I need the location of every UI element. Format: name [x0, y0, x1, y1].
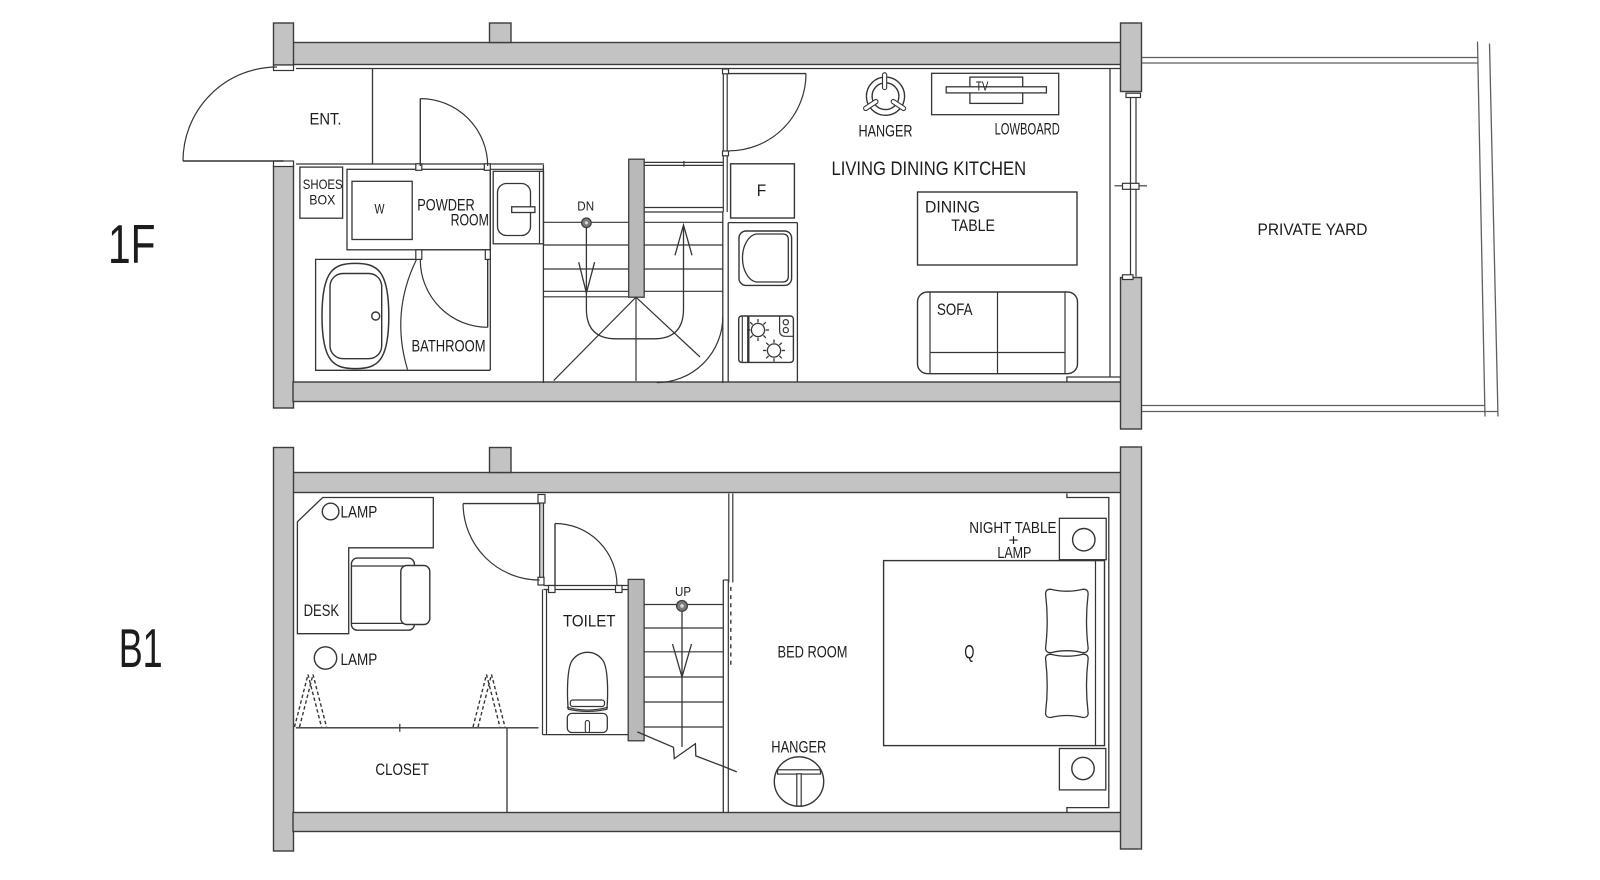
svg-text:LIVING DINING KITCHEN: LIVING DINING KITCHEN [832, 159, 1027, 180]
svg-text:BOX: BOX [309, 192, 336, 208]
svg-text:CLOSET: CLOSET [375, 760, 429, 779]
svg-text:TABLE: TABLE [951, 216, 995, 235]
svg-text:B1: B1 [119, 617, 163, 679]
svg-text:DESK: DESK [304, 601, 340, 620]
svg-text:LAMP: LAMP [997, 545, 1031, 562]
svg-text:SHOES: SHOES [303, 176, 343, 192]
svg-text:HANGER: HANGER [771, 738, 826, 757]
svg-text:SOFA: SOFA [937, 300, 973, 319]
svg-text:1F: 1F [108, 213, 156, 275]
svg-text:BATHROOM: BATHROOM [412, 336, 486, 355]
svg-text:ROOM: ROOM [451, 210, 489, 229]
svg-text:HANGER: HANGER [859, 122, 913, 141]
svg-text:TV: TV [976, 79, 989, 94]
svg-text:LOWBOARD: LOWBOARD [995, 120, 1060, 139]
svg-text:BED ROOM: BED ROOM [778, 643, 848, 662]
svg-text:F: F [757, 181, 767, 200]
svg-text:UP: UP [675, 584, 691, 599]
svg-text:ENT.: ENT. [310, 110, 342, 129]
svg-text:LAMP: LAMP [341, 503, 378, 522]
svg-text:TOILET: TOILET [563, 611, 616, 630]
svg-text:LAMP: LAMP [341, 650, 378, 669]
svg-text:DINING: DINING [925, 198, 980, 217]
svg-text:W: W [375, 201, 386, 217]
svg-text:Q: Q [964, 642, 974, 663]
svg-text:PRIVATE YARD: PRIVATE YARD [1258, 220, 1368, 239]
svg-text:DN: DN [577, 199, 594, 214]
